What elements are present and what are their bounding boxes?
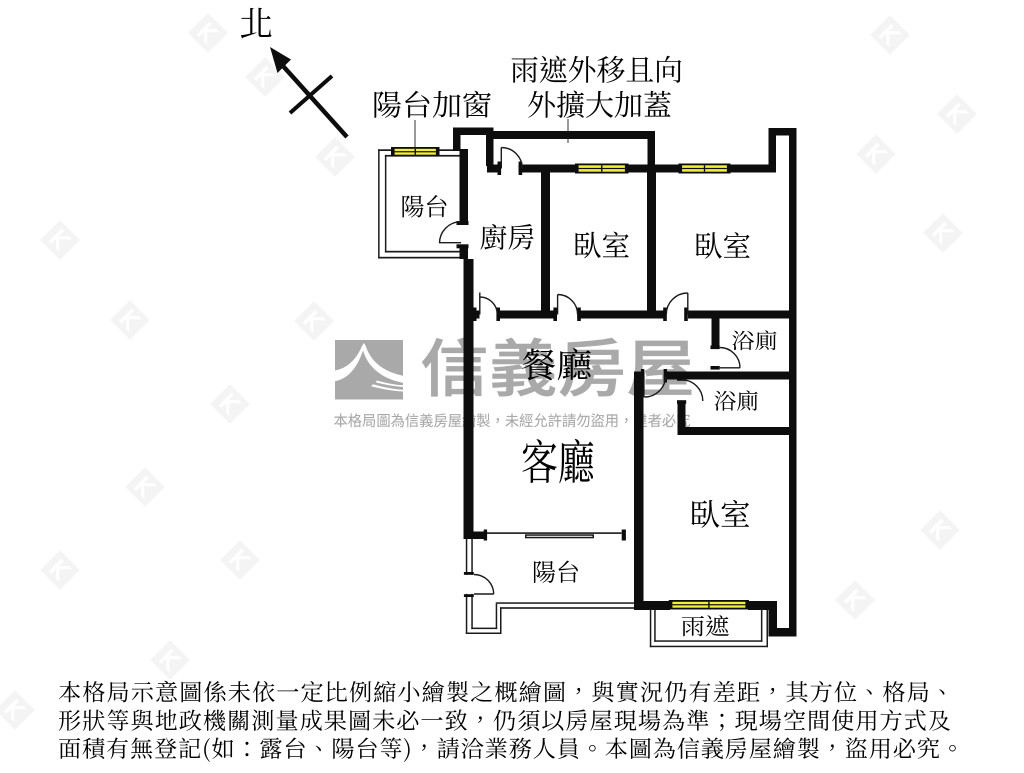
svg-text:陽台: 陽台 [532, 554, 580, 589]
svg-text:餐廳: 餐廳 [521, 338, 593, 388]
svg-text:臥室: 臥室 [573, 224, 630, 265]
svg-text:陽台加窗: 陽台加窗 [372, 83, 492, 125]
svg-text:外擴大加蓋: 外擴大加蓋 [527, 83, 672, 125]
svg-text:客廳: 客廳 [521, 425, 595, 494]
svg-text:浴廁: 浴廁 [732, 325, 778, 356]
svg-text:陽台: 陽台 [401, 189, 449, 224]
svg-text:雨遮: 雨遮 [681, 609, 730, 642]
svg-text:臥室: 臥室 [690, 491, 751, 535]
svg-text:北: 北 [239, 0, 273, 46]
svg-text:面積有無登記(如：露台、陽台等)，請洽業務人員。本圖為信義房: 面積有無登記(如：露台、陽台等)，請洽業務人員。本圖為信義房屋繪製，盜用必究。 [58, 730, 964, 764]
svg-text:臥室: 臥室 [694, 225, 751, 266]
svg-text:浴廁: 浴廁 [714, 385, 759, 416]
svg-text:廚房: 廚房 [480, 217, 536, 257]
